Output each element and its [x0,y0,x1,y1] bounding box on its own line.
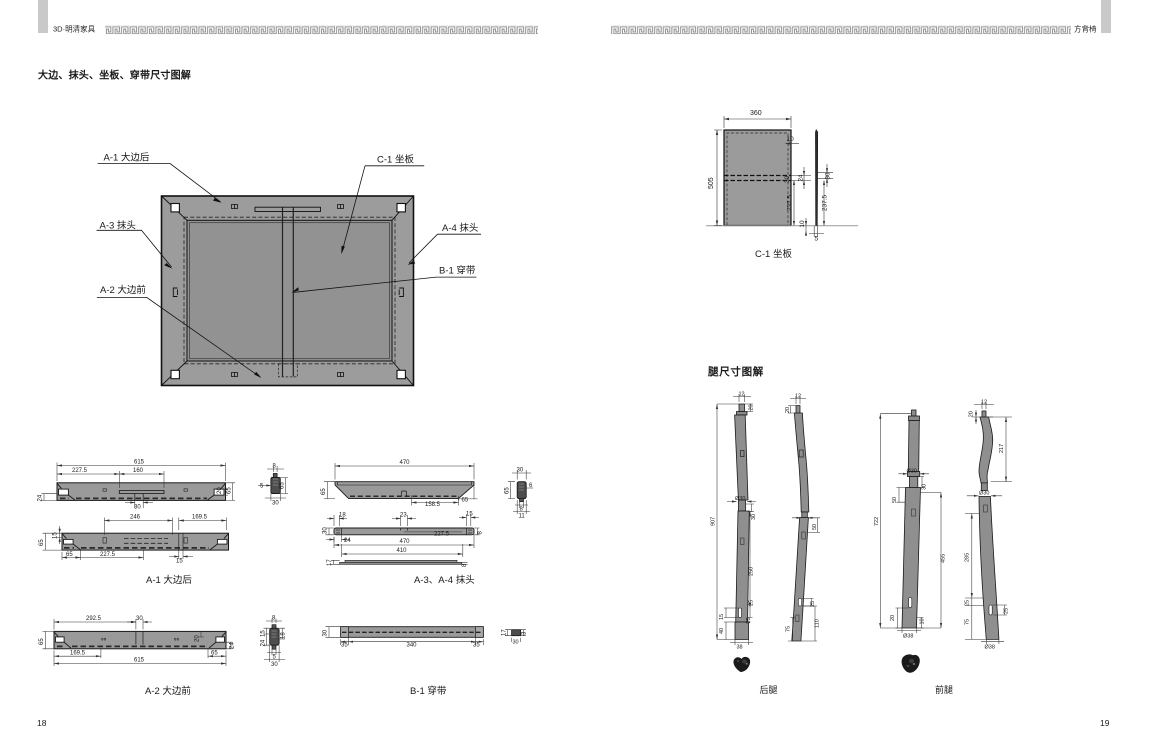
svg-text:20: 20 [749,404,755,410]
svg-text:12: 12 [981,400,987,406]
svg-text:15: 15 [719,614,725,620]
svg-text:246: 246 [130,515,141,521]
svg-text:25: 25 [965,600,971,606]
svg-text:20: 20 [890,615,896,621]
svg-text:23: 23 [400,513,407,519]
svg-text:18: 18 [281,632,287,639]
svg-text:30: 30 [922,484,928,490]
svg-text:30: 30 [517,468,524,474]
svg-text:C-1 坐板: C-1 坐板 [377,153,414,165]
svg-text:Ø38: Ø38 [985,645,995,651]
svg-text:907: 907 [711,517,717,526]
svg-text:18: 18 [37,718,47,728]
svg-text:腿尺寸图解: 腿尺寸图解 [708,365,764,378]
svg-text:3: 3 [522,631,528,635]
svg-text:20: 20 [785,407,791,413]
svg-text:285: 285 [965,553,971,562]
svg-text:15: 15 [53,532,59,539]
svg-text:65: 65 [321,488,327,495]
svg-text:340: 340 [407,643,418,649]
svg-text:24: 24 [230,642,236,649]
svg-text:360: 360 [750,110,762,117]
svg-text:227.5: 227.5 [434,532,450,538]
svg-text:65: 65 [66,552,73,558]
svg-text:12: 12 [795,394,801,400]
svg-text:169.5: 169.5 [70,651,86,657]
svg-text:8: 8 [273,464,277,470]
svg-text:35: 35 [341,643,348,649]
svg-text:30: 30 [751,514,757,520]
svg-text:410: 410 [397,548,408,554]
svg-text:217: 217 [999,444,1005,453]
svg-text:10: 10 [787,136,795,143]
svg-text:A-1 大边后: A-1 大边后 [104,151,150,163]
svg-text:17: 17 [327,559,333,566]
svg-text:65: 65 [227,487,233,494]
svg-text:5: 5 [815,236,819,243]
svg-text:8: 8 [478,531,484,535]
svg-text:B-1 穿带: B-1 穿带 [410,685,447,697]
svg-text:方背椅: 方背椅 [1074,24,1097,34]
svg-text:30: 30 [271,662,278,668]
svg-text:50: 50 [892,497,898,503]
svg-text:Ø30: Ø30 [979,490,989,496]
svg-text:25: 25 [1004,608,1010,614]
svg-text:A-1 大边后: A-1 大边后 [146,574,192,586]
svg-text:24: 24 [38,494,44,501]
svg-text:40: 40 [719,628,725,634]
svg-text:292.5: 292.5 [86,616,102,622]
svg-text:10: 10 [799,220,806,228]
svg-text:250: 250 [749,567,755,576]
svg-text:30: 30 [323,629,329,636]
svg-text:227.5: 227.5 [100,552,116,558]
svg-text:65: 65 [39,539,45,546]
svg-text:470: 470 [400,460,411,466]
svg-text:65: 65 [505,487,511,494]
svg-text:25: 25 [749,600,755,606]
svg-text:227.5: 227.5 [72,468,88,474]
svg-text:24: 24 [344,538,351,544]
svg-text:A-4 抹头: A-4 抹头 [442,222,478,234]
svg-text:65: 65 [39,638,45,645]
svg-text:19: 19 [1100,718,1110,728]
svg-text:158.5: 158.5 [425,502,441,508]
svg-text:237.5: 237.5 [787,194,794,211]
svg-text:30: 30 [825,172,832,180]
svg-text:65: 65 [211,651,218,657]
svg-text:30: 30 [513,640,519,646]
svg-text:C-1 坐板: C-1 坐板 [755,248,792,260]
svg-text:15: 15 [261,630,267,637]
svg-text:Ø30: Ø30 [735,496,745,502]
svg-text:15: 15 [466,512,473,518]
svg-text:8: 8 [462,563,468,567]
svg-text:B-1 穿带: B-1 穿带 [439,265,476,277]
svg-text:30: 30 [136,616,143,622]
svg-text:15: 15 [176,559,183,565]
svg-text:455: 455 [941,554,947,563]
svg-text:30: 30 [323,527,329,534]
svg-text:75: 75 [965,619,971,625]
svg-text:大边、抹头、坐板、穿带尺寸图解: 大边、抹头、坐板、穿带尺寸图解 [38,69,191,82]
svg-text:169.5: 169.5 [192,515,208,521]
svg-text:8: 8 [272,616,276,622]
svg-text:65: 65 [280,482,286,489]
svg-text:65: 65 [462,498,469,504]
svg-text:38: 38 [737,645,743,651]
svg-text:Ø38: Ø38 [903,634,913,640]
svg-text:A-3、A-4 抹头: A-3、A-4 抹头 [414,574,475,586]
svg-text:615: 615 [134,460,145,466]
svg-text:20: 20 [968,411,974,417]
svg-text:24: 24 [798,174,805,182]
svg-text:722: 722 [874,517,880,526]
svg-text:20: 20 [746,617,752,623]
svg-text:Ø30: Ø30 [907,468,917,474]
svg-text:17: 17 [502,629,508,636]
svg-text:30: 30 [784,175,791,183]
svg-text:50: 50 [812,524,818,530]
svg-text:11: 11 [519,514,526,520]
svg-text:75: 75 [786,626,792,632]
svg-text:12: 12 [739,392,745,398]
svg-text:30: 30 [272,501,279,507]
svg-text:30: 30 [134,505,141,511]
svg-text:前腿: 前腿 [935,684,953,695]
svg-text:470: 470 [400,539,411,545]
svg-text:160: 160 [133,468,144,474]
svg-text:A-3 抹头: A-3 抹头 [100,220,136,232]
svg-text:237.5: 237.5 [822,194,829,211]
svg-text:3D·明清家具: 3D·明清家具 [53,24,96,34]
svg-text:5: 5 [260,484,264,490]
svg-text:后腿: 后腿 [760,685,778,695]
svg-text:505: 505 [708,177,715,189]
svg-text:20: 20 [195,635,201,642]
svg-text:615: 615 [134,658,145,664]
svg-text:A-2 大边前: A-2 大边前 [145,685,191,697]
svg-text:110: 110 [815,619,821,628]
svg-text:35: 35 [473,643,480,649]
svg-text:20: 20 [217,487,223,494]
svg-text:24: 24 [261,639,267,646]
svg-text:18: 18 [339,513,346,519]
svg-text:10: 10 [920,618,926,624]
svg-text:A-2 大边前: A-2 大边前 [100,284,146,296]
